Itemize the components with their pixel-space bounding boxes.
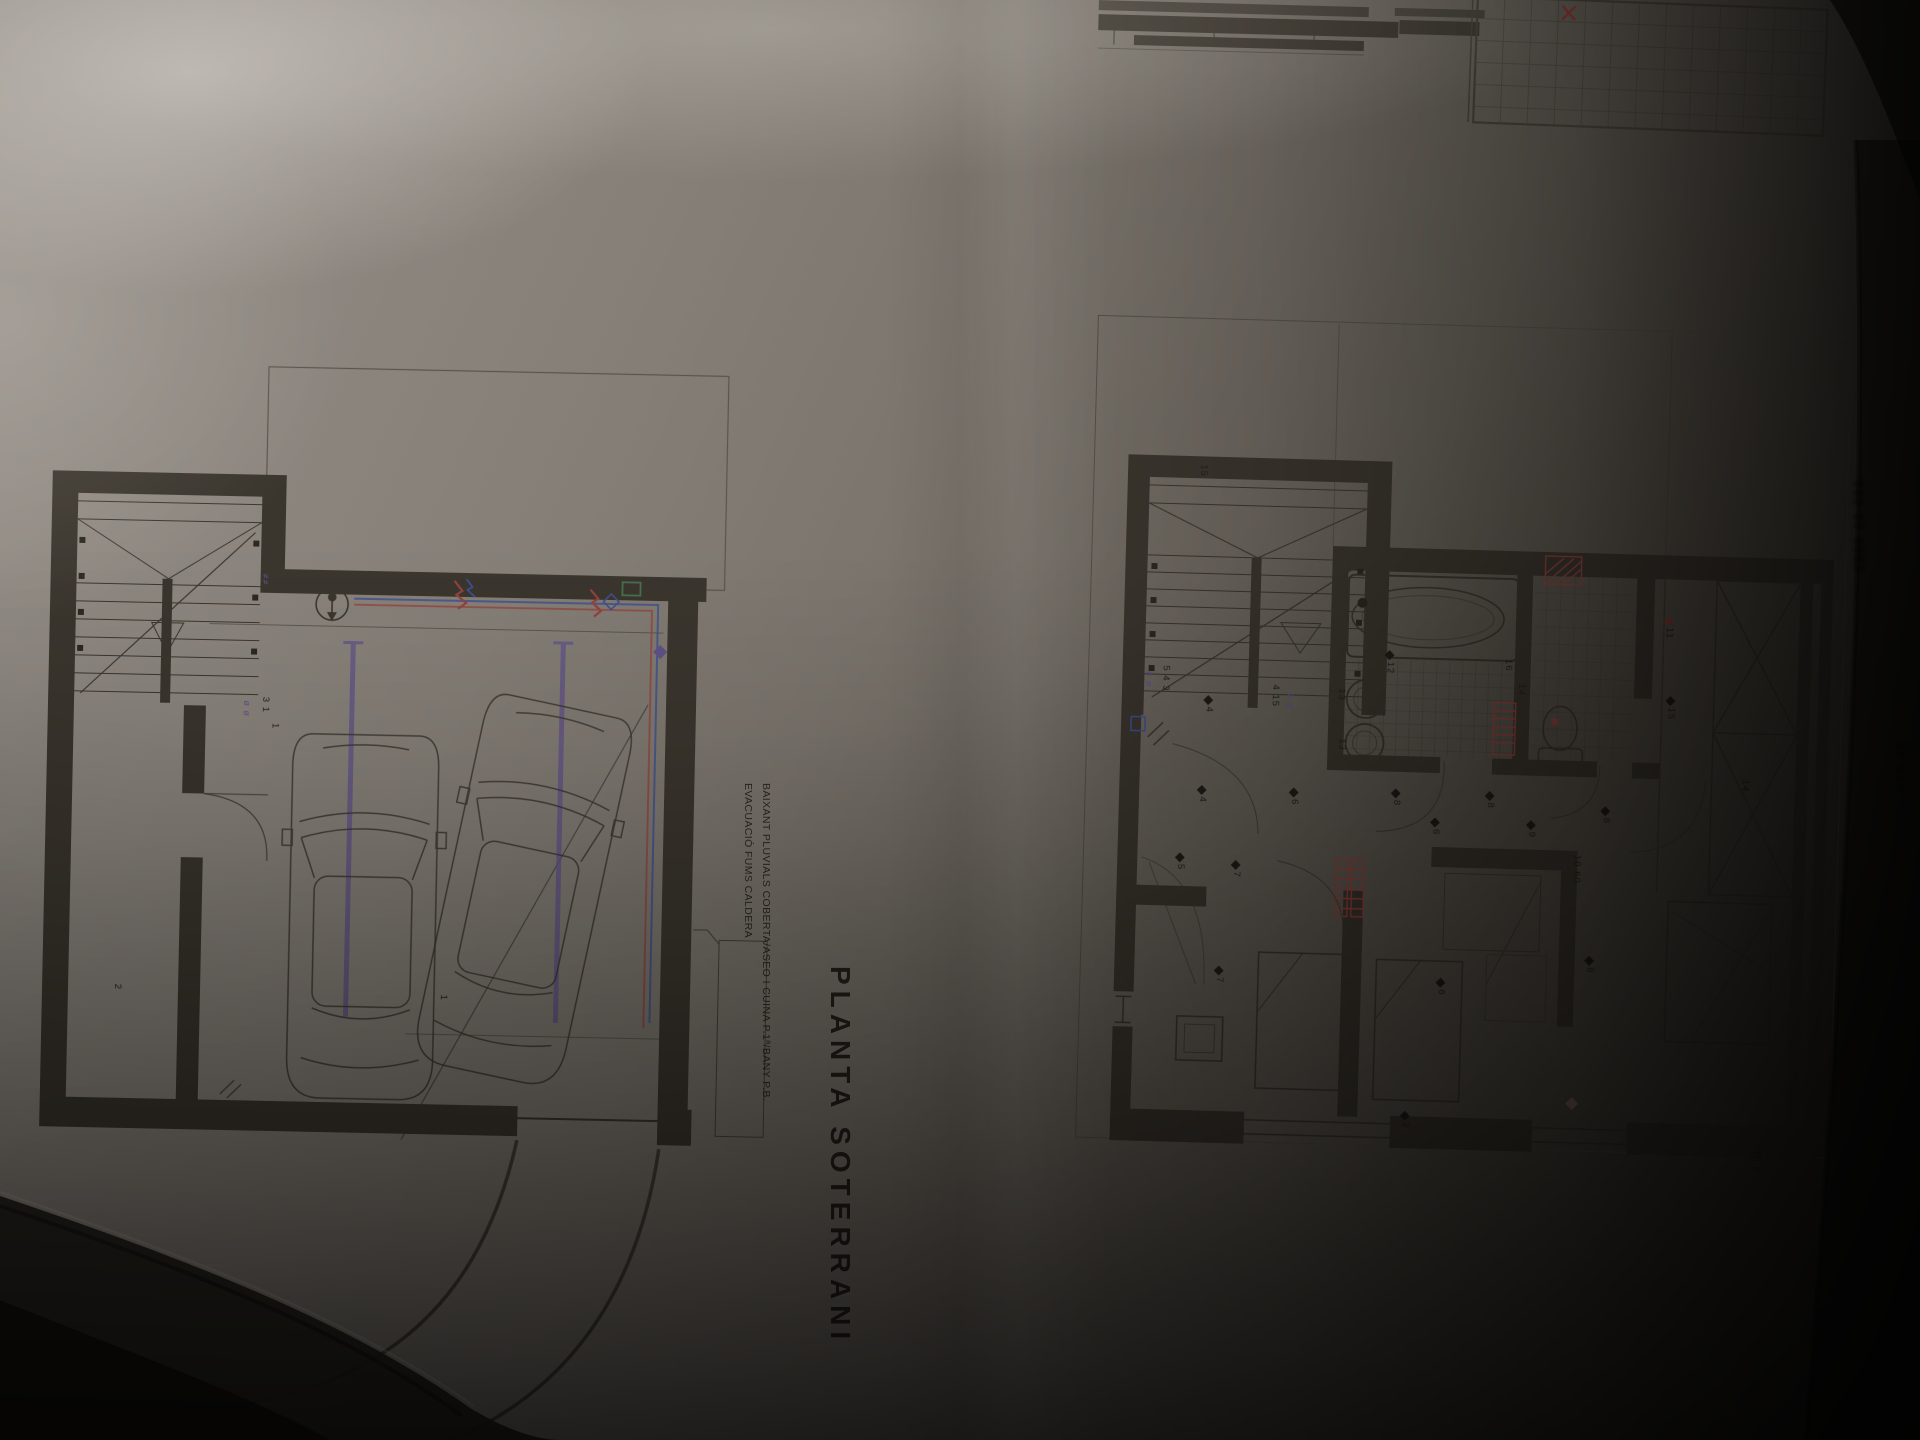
room-marker: 12: [1385, 652, 1396, 675]
diamond-icon: [1400, 1111, 1410, 1121]
diamond-icon: [1666, 696, 1676, 706]
heating-pipes: [345, 577, 668, 1028]
basement-plan: 3 1ø ø≠≠112: [16, 320, 860, 1440]
nightstand: [1176, 1016, 1223, 1061]
diamond-icon: [1526, 820, 1536, 830]
floor-above-outline: [265, 367, 729, 591]
driveway-ramp: [134, 1132, 659, 1440]
towel-radiator: [1492, 703, 1515, 756]
door-swing: [203, 794, 268, 861]
roof-plan-fragment: [1462, 0, 1857, 159]
room-marker: 6: [1430, 819, 1440, 836]
wardrobe: [1657, 579, 1802, 897]
door-swing: [1138, 857, 1208, 985]
room-marker: 8: [1584, 957, 1594, 974]
dimension-label: 4 15: [1270, 684, 1281, 707]
room-marker: 9: [1526, 822, 1536, 839]
upper-floor-plan-drawing: [1060, 295, 1884, 1197]
light-point-symbol: [316, 588, 349, 622]
room-marker: 7: [1214, 967, 1224, 984]
dimension-label: 2: [112, 984, 122, 991]
dimension-label: 1: [438, 994, 448, 1001]
dimension-label: 15 2: [1751, 1150, 1762, 1173]
diamond-icon: [1436, 978, 1446, 988]
diamond-icon: [1214, 966, 1224, 976]
ceiling-line: [210, 624, 664, 634]
diamond-icon: [1197, 785, 1207, 795]
plumbing-symbol: ø ø: [1286, 693, 1296, 710]
bed: [1255, 952, 1345, 1090]
room-marker: 8: [1485, 792, 1495, 809]
toilet: [1538, 706, 1584, 763]
diamond-icon: [1485, 791, 1495, 801]
annotation-baixant-pluvials: BAIXANT PLUVIALS COBERTA/ASEO I CUINA P.…: [760, 783, 772, 1101]
walls: [39, 470, 709, 1146]
bed: [1373, 959, 1463, 1101]
cut-off-drawing-fragment: [1093, 0, 1494, 70]
room-marker: 15: [1665, 697, 1676, 720]
roof-tile-grid: [1473, 0, 1828, 136]
dimension-label: 13: [1336, 738, 1346, 751]
plumbing-symbol: ø ø: [1144, 671, 1154, 688]
diamond-icon: [1664, 616, 1674, 626]
photo-of-floor-plans: 3 1ø ø≠≠112: [0, 0, 1920, 1440]
parking-axis-lines: [335, 638, 573, 1023]
dimension-label: 10 60: [1571, 855, 1582, 884]
floor-tiles: [1530, 576, 1635, 763]
garage-door: [517, 1118, 659, 1121]
room-marker: 2: [1400, 1112, 1410, 1129]
handwritten-note: ▮▮▮ ▮▮ ▮▮▮▮: [1852, 480, 1868, 574]
car-1: [277, 733, 449, 1100]
stairs: [74, 501, 262, 705]
diamond-icon: [1175, 852, 1185, 862]
room-marker: 4: [1197, 786, 1207, 803]
annotation-leader: [689, 930, 767, 1138]
red-cross-mark: [1562, 6, 1576, 20]
wc: [1530, 556, 1636, 765]
dressing-room: [1441, 873, 1549, 1022]
diamond-icon: [1231, 860, 1241, 870]
diamond-icon: [1391, 788, 1401, 798]
valve-symbol: [653, 645, 667, 659]
dimension-label: 3 1: [260, 697, 270, 713]
plumbing-symbol: ø ø: [242, 700, 252, 717]
diamond-icon: [1430, 818, 1440, 828]
room-marker: 4: [1203, 696, 1213, 713]
furniture: [1135, 857, 1773, 1111]
room-marker: 11: [1664, 617, 1675, 639]
dimension-label: 5 4 3: [1160, 665, 1171, 691]
walls: [1109, 454, 1836, 1160]
diamond-icon: [1385, 650, 1395, 660]
floor-step-line: [405, 1034, 659, 1039]
basement-plan-drawing: [16, 320, 860, 1440]
dimension-label: 14: [1516, 683, 1526, 696]
dimension-label: 1: [269, 723, 279, 730]
bed: [1664, 902, 1772, 1045]
room-marker: 5: [1175, 854, 1185, 871]
door-swings: [1167, 744, 1706, 949]
annotation-evacuacio-fums: EVACUACIÓ FUMS CALDERA: [742, 783, 754, 938]
marker-diamond: [1565, 1097, 1578, 1110]
plumbing-symbol: ≠≠: [260, 574, 270, 586]
dimension-label: 15: [1198, 464, 1208, 477]
car-2: [402, 689, 646, 1092]
plan-title: PLANTA SOTERRANI: [824, 966, 856, 1345]
room-marker: 6: [1436, 979, 1446, 996]
room-marker: 6: [1289, 789, 1299, 806]
room-marker: 7: [1231, 861, 1241, 878]
diamond-icon: [1601, 806, 1611, 816]
plan-outline: [1075, 315, 1852, 1158]
diamond-icon: [1204, 695, 1214, 705]
dimension-label: 16: [1503, 659, 1513, 672]
diamond-icon: [1289, 788, 1299, 798]
room-marker: 8: [1600, 808, 1610, 825]
upper-floor-plan: 155 4 3ø ø4 15ø ø41213131614111546886910…: [1060, 295, 1884, 1197]
dimension-label: 14: [1739, 779, 1749, 792]
diamond-icon: [1585, 956, 1595, 966]
handwritten-note: ▮▮ ▮▮▮: [1894, 742, 1910, 793]
dimension-label: 13: [1336, 688, 1346, 701]
section-marks: [220, 1080, 241, 1098]
room-marker: 8: [1391, 790, 1401, 807]
